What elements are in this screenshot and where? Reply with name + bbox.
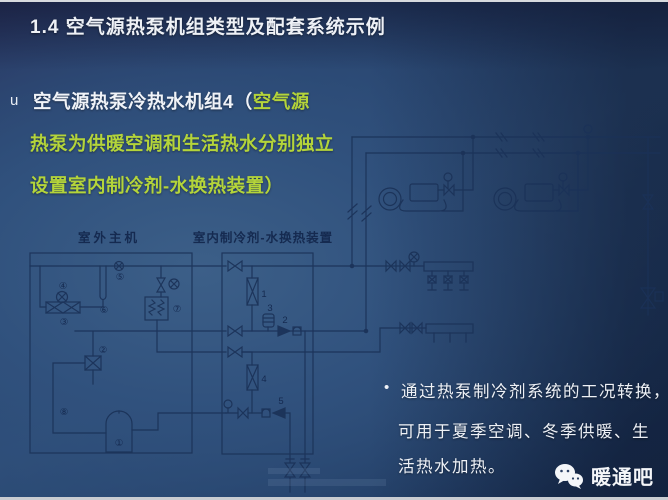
component-number-3: ③ — [60, 317, 69, 328]
brand-name: 暖通吧 — [591, 461, 654, 490]
indoor-number-2: 2 — [282, 315, 287, 326]
component-number-8: ⑧ — [60, 407, 69, 418]
indoor-component-numbers: 1 2 3 4 5 — [261, 289, 287, 407]
note-line-3: 活热水加热。 — [398, 453, 506, 477]
component-number-5: ⑤ — [116, 272, 125, 283]
note-line-1: 通过热泵制冷剂系统的工况转换， — [401, 378, 668, 402]
fan-coil-unit-1 — [379, 135, 475, 211]
indoor-number-5: 5 — [278, 396, 283, 407]
note-line-2: 可用于夏季空调、冬季供暖、生 — [398, 418, 650, 442]
component-number-1: ① — [115, 438, 124, 449]
outdoor-unit-label: 室外主机 — [78, 230, 140, 245]
fan-coil-unit-2 — [494, 125, 592, 211]
indoor-unit-label: 室内制冷剂-水换热装置 — [193, 230, 333, 245]
footer-brand: 暖通吧 — [554, 461, 654, 490]
manifold-upper — [386, 252, 473, 290]
indoor-number-4: 4 — [261, 374, 266, 385]
note-bullet: • — [384, 379, 389, 396]
component-number-4: ④ — [59, 281, 68, 292]
manifold-lower — [242, 323, 473, 352]
wechat-icon — [554, 463, 584, 489]
right-riser — [641, 137, 663, 315]
component-number-2: ② — [99, 345, 108, 356]
indoor-number-1: 1 — [261, 289, 266, 300]
component-number-7: ⑦ — [173, 304, 182, 315]
component-number-6: ⑥ — [100, 305, 109, 316]
outdoor-component-numbers: ① ② ③ ④ ⑤ ⑥ ⑦ ⑧ — [59, 272, 182, 449]
slide: 1.4 空气源热泵机组类型及配套系统示例 u 空气源热泵冷热水机组4（空气源 热… — [0, 0, 668, 500]
indoor-exchange-unit — [222, 253, 366, 492]
indoor-number-3: 3 — [267, 303, 272, 314]
